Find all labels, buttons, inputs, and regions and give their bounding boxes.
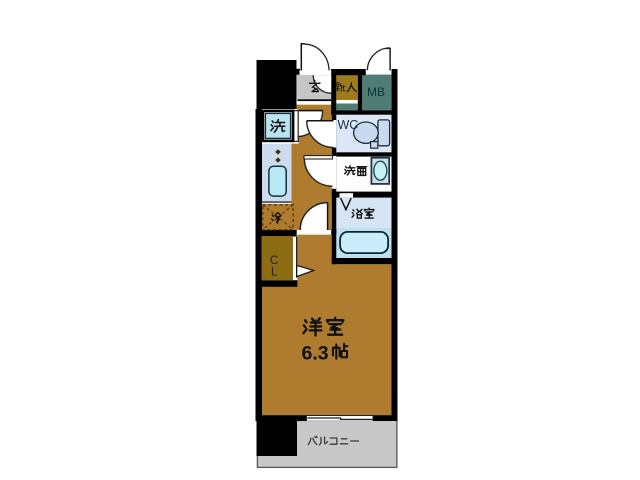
svg-text:C: C (270, 255, 278, 267)
svg-text:6.3: 6.3 (302, 343, 329, 365)
svg-text:L: L (271, 267, 278, 279)
svg-text:MB: MB (367, 85, 385, 99)
svg-text:WC: WC (338, 118, 359, 132)
